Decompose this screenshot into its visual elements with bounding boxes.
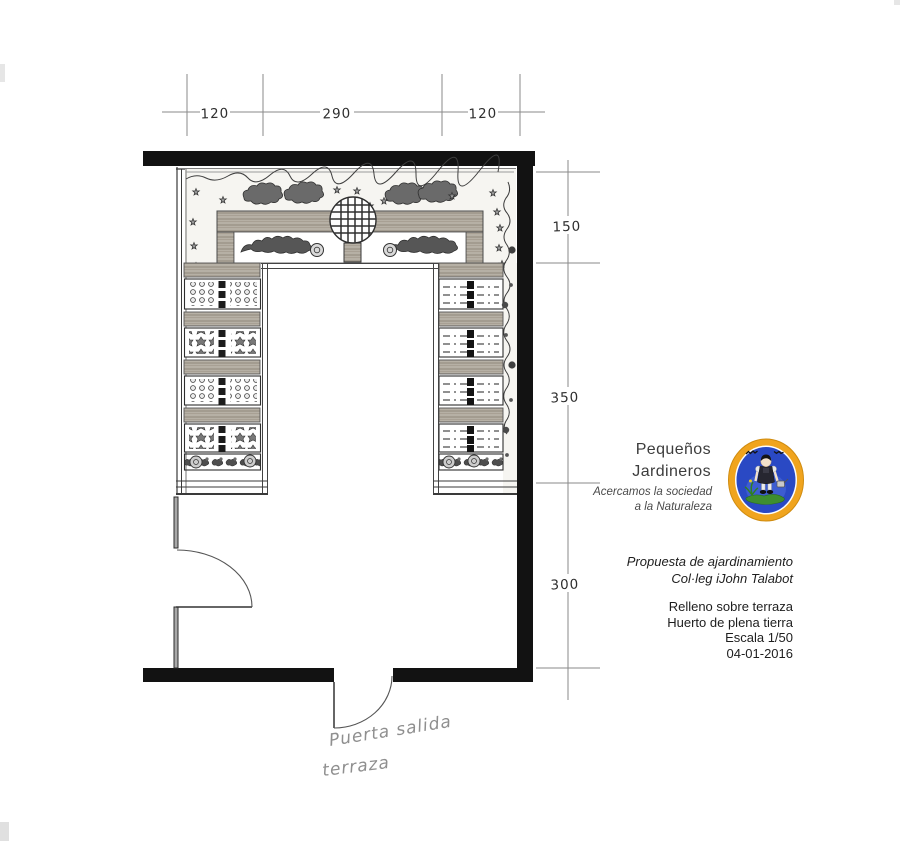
project-client: Col·leg iJohn Talabot <box>627 570 793 587</box>
scanned-garden-plan-page: 120 290 120 150 350 300 <box>0 0 900 841</box>
dim-label-right-bottom: 300 <box>550 577 579 594</box>
bottom-wall-left <box>143 668 334 682</box>
logo-tagline-line1: Acercamos la sociedad <box>593 485 712 500</box>
dense-planting-strip <box>185 454 261 470</box>
dense-planting-strip <box>439 454 503 470</box>
logo-wordmark: Pequeños Jardineros <box>632 439 711 483</box>
left-terrace-door <box>176 550 252 607</box>
dim-label-right-top: 150 <box>552 219 581 236</box>
floor-plan-drawing: 120 290 120 150 350 300 <box>0 0 900 841</box>
right-wall <box>517 151 533 682</box>
logo-wordmark-line2: Jardineros <box>632 461 711 483</box>
right-raised-beds <box>439 279 503 470</box>
top-wall <box>143 151 535 166</box>
raised-bed <box>439 424 503 452</box>
dimension-line-right <box>536 160 600 700</box>
detail-line-2: Huerto de plena tierra <box>627 615 793 631</box>
logo-tagline-line2: a la Naturaleza <box>593 500 712 515</box>
date-label: 04-01-2016 <box>627 646 793 662</box>
raised-bed <box>439 328 503 357</box>
dim-label-top-left: 120 <box>200 106 229 123</box>
raised-bed <box>185 424 261 452</box>
scale-label: Escala 1/50 <box>627 630 793 646</box>
courtyard-border <box>261 263 439 494</box>
note-line-1: Puerta salida <box>328 712 453 751</box>
door-swing-arc <box>334 676 392 728</box>
door-swing-arc <box>177 550 252 607</box>
logo-tagline: Acercamos la sociedad a la Naturaleza <box>593 485 712 515</box>
dimension-labels-right: 150 350 300 <box>547 216 585 593</box>
dimension-labels-top: 120 290 120 <box>200 104 498 122</box>
gardener-logo-icon <box>727 437 805 523</box>
detail-line-1: Relleno sobre terraza <box>627 599 793 615</box>
dim-label-right-middle: 350 <box>550 390 579 407</box>
bottom-wall-right <box>393 668 533 682</box>
note-line-2: terraza <box>321 753 391 781</box>
logo-wordmark-line1: Pequeños <box>632 439 711 461</box>
raised-bed <box>439 376 503 405</box>
raised-bed <box>185 328 261 357</box>
raised-bed <box>439 279 503 309</box>
bottom-exit-door <box>334 676 392 728</box>
left-raised-beds <box>185 279 261 470</box>
project-title: Propuesta de ajardinamiento <box>627 553 793 570</box>
column-base-edging <box>176 481 517 494</box>
dim-label-top-right: 120 <box>468 106 497 123</box>
title-block: Propuesta de ajardinamiento Col·leg iJoh… <box>627 553 793 661</box>
dim-label-top-center: 290 <box>322 106 351 123</box>
handwritten-note: Puerta salida terraza <box>321 712 453 781</box>
raised-bed <box>185 279 261 309</box>
left-wall-upper <box>174 497 178 548</box>
left-wall-lower <box>174 607 178 668</box>
raised-bed <box>185 376 261 405</box>
